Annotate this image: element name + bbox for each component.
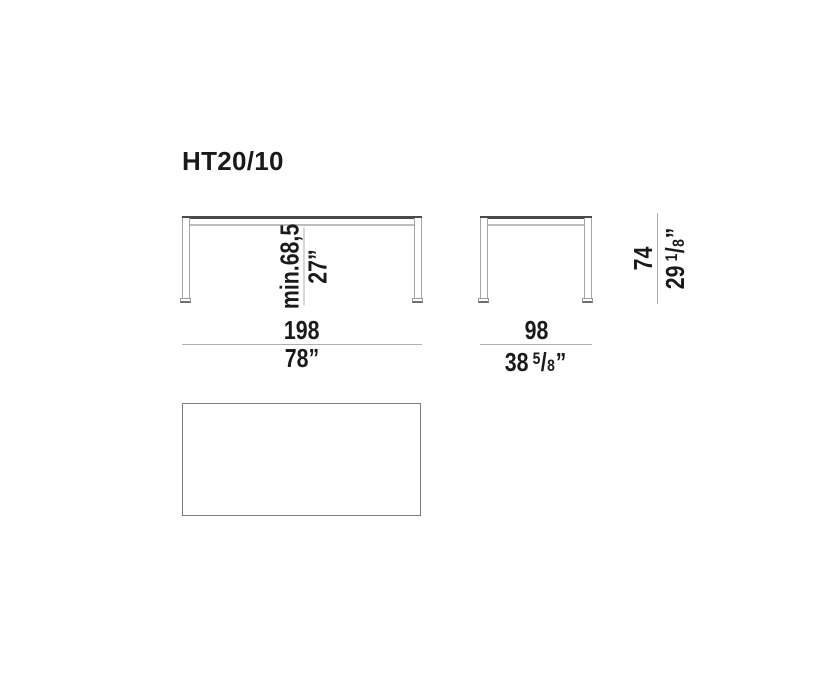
- height-fraction-slash: /: [660, 247, 690, 253]
- height-inch-mark: ”: [660, 228, 690, 239]
- front-width-imperial-text: 78”: [285, 345, 319, 372]
- front-width-imperial-label: 78”: [281, 345, 323, 372]
- front-left-foot: [180, 298, 191, 303]
- height-metric-label: 74: [630, 244, 657, 273]
- side-right-leg: [584, 218, 592, 299]
- height-dimension: 74 291/8”: [630, 213, 685, 304]
- clearance-imperial-text: 27”: [305, 249, 332, 283]
- height-metric-text: 74: [630, 247, 657, 271]
- front-left-leg: [182, 218, 190, 299]
- height-fraction-denominator: 8: [669, 239, 688, 247]
- side-left-foot: [478, 298, 489, 303]
- model-title: HT20/10: [182, 146, 284, 177]
- depth-fraction-slash: /: [541, 347, 547, 377]
- depth-fraction-denominator: 8: [548, 356, 556, 375]
- height-imperial-whole: 29: [660, 266, 690, 290]
- side-tabletop-line: [480, 216, 592, 219]
- front-width-dimension: 198 78”: [182, 317, 422, 372]
- drawing-canvas: HT20/10 min.68,5 27” 198 78” 98: [0, 0, 840, 679]
- depth-imperial-label: 385/8”: [498, 345, 573, 372]
- height-imperial-label: 291/8”: [658, 221, 685, 296]
- top-view-outline: [182, 403, 421, 516]
- front-right-leg: [414, 218, 422, 299]
- clearance-metric-text: min.68,5: [276, 224, 303, 309]
- side-right-foot: [582, 298, 593, 303]
- depth-inch-mark: ”: [556, 347, 567, 377]
- depth-metric-label: 98: [522, 317, 551, 344]
- depth-metric-text: 98: [524, 317, 548, 344]
- height-fraction-numerator: 1: [662, 254, 681, 262]
- front-width-metric-label: 198: [280, 317, 323, 344]
- depth-fraction-numerator: 5: [533, 349, 541, 368]
- side-left-leg: [480, 218, 488, 299]
- front-right-foot: [412, 298, 423, 303]
- front-width-metric-text: 198: [284, 317, 320, 344]
- depth-imperial-text: 385/8”: [505, 345, 567, 379]
- clearance-metric-label: min.68,5: [276, 214, 303, 318]
- front-clearance-dimension: min.68,5 27”: [277, 228, 332, 306]
- depth-imperial-whole: 38: [505, 347, 529, 377]
- side-apron-line: [488, 224, 584, 226]
- height-imperial-text: 291/8”: [658, 228, 692, 290]
- clearance-imperial-label: 27”: [305, 246, 332, 288]
- side-depth-dimension: 98 385/8”: [480, 317, 592, 372]
